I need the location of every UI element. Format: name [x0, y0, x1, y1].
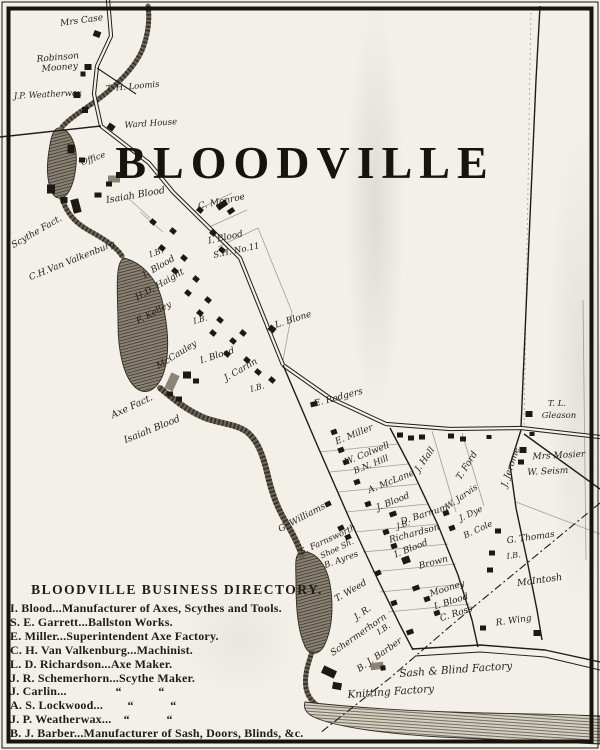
map-label: C.H.Van Valkenburg: [28, 239, 117, 283]
map-label: E. Miller: [333, 423, 375, 448]
building: [419, 435, 425, 440]
directory-entry: C. H. Van Valkenburg...Machinist.: [10, 644, 344, 658]
map-title: BLOODVILLE: [115, 137, 494, 188]
building: [81, 72, 86, 77]
building: [68, 145, 75, 154]
map-label: I.B.: [505, 550, 521, 561]
map-label: Mrs Case: [59, 13, 104, 29]
directory-entry: I. Blood...Manufacturer of Axes, Scythes…: [10, 602, 344, 616]
building: [412, 584, 420, 591]
building: [480, 626, 486, 631]
map-label: Mrs Mosier: [531, 450, 586, 463]
lot-line: [258, 228, 292, 312]
building: [408, 436, 414, 441]
building: [183, 372, 191, 379]
building: [268, 376, 276, 384]
map-label: J.P. Weatherwax: [12, 88, 83, 102]
building: [184, 289, 192, 297]
map-label: L. Blone: [273, 310, 313, 331]
building: [47, 185, 55, 194]
building: [526, 411, 533, 417]
building: [489, 551, 495, 556]
building: [149, 218, 157, 226]
building: [167, 392, 173, 397]
building: [93, 30, 102, 38]
building: [204, 296, 212, 304]
building: [82, 107, 88, 113]
lot-line: [583, 300, 586, 560]
building: [397, 433, 403, 438]
map-label: R. Wing: [494, 614, 532, 629]
directory-entry: S. E. Garrett...Ballston Works.: [10, 616, 344, 630]
building: [164, 372, 179, 391]
building: [364, 501, 371, 508]
building: [423, 596, 430, 603]
directory-entry: J. Carlin... “ “: [10, 685, 344, 699]
map-label: T. Ford: [455, 450, 480, 482]
west-road: [0, 126, 101, 137]
map-label: Mooney: [40, 61, 79, 74]
building: [389, 510, 397, 517]
map-label: W. Seism: [527, 466, 568, 478]
building: [330, 429, 337, 436]
building: [406, 628, 414, 635]
building: [95, 193, 102, 198]
map-label: I. Blood: [198, 346, 236, 367]
building: [390, 600, 397, 607]
building: [61, 197, 68, 203]
directory-entry: E. Miller...Superintendent Axe Factory.: [10, 630, 344, 644]
building: [254, 368, 262, 376]
directory-entry: L. D. Richardson...Axe Maker.: [10, 658, 344, 672]
map-label: B. Cole: [461, 519, 494, 542]
building: [70, 198, 81, 214]
map-label: Gleason: [542, 411, 577, 421]
map-label: McIntosh: [515, 572, 563, 589]
map-label: T. L.: [548, 399, 566, 409]
map-label: Isaiah Blood: [121, 413, 181, 446]
map-label: J. Carlin: [221, 357, 260, 385]
building: [518, 460, 524, 465]
building: [176, 397, 182, 402]
building: [229, 337, 237, 345]
map-label: Scythe Fact.: [10, 214, 64, 251]
building: [106, 182, 112, 187]
building: [337, 447, 344, 454]
directory-entry: J. P. Weatherwax... “ “: [10, 713, 344, 727]
building: [324, 500, 332, 507]
map-label: A. McLane: [366, 468, 416, 496]
map-label: G. Thomas: [506, 530, 556, 547]
map-label: Isaiah Blood: [104, 185, 166, 206]
map-label: Knitting Factory: [346, 683, 435, 701]
building: [85, 64, 92, 70]
map-label: B. J. Barber: [355, 636, 405, 675]
map-label: Ward House: [124, 117, 177, 131]
building: [209, 329, 217, 337]
jerome-road-north: [521, 6, 540, 427]
building: [530, 432, 535, 436]
map-label: J. Hall: [412, 446, 437, 476]
directory-title: BLOODVILLE BUSINESS DIRECTORY.: [10, 582, 344, 598]
map-label: J. Jerome: [499, 446, 522, 490]
map-label: I.B.: [191, 313, 208, 326]
map-label: I.B.: [147, 246, 164, 260]
building: [239, 329, 247, 337]
building: [460, 437, 466, 442]
building: [487, 568, 493, 573]
directory-entry: A. S. Lockwood... “ “: [10, 699, 344, 713]
building: [227, 207, 236, 215]
map-label: J. Blood: [373, 491, 411, 514]
building: [169, 227, 177, 235]
map-page: Mrs CaseRobinsonMooneyT. H. LoomisJ.P. W…: [0, 0, 600, 750]
building: [193, 379, 199, 384]
directory-entry: B. J. Barber...Manufacturer of Sash, Doo…: [10, 727, 344, 741]
lot-line: [516, 502, 600, 534]
map-label: Brown: [417, 554, 450, 572]
building: [534, 630, 541, 636]
map-label: Office: [80, 150, 107, 168]
creek-band: [304, 702, 600, 744]
bottom-road: [412, 645, 600, 662]
building: [495, 529, 501, 534]
map-label: Sash & Blind Factory: [399, 660, 514, 680]
map-label: Axe Fact.: [108, 392, 154, 421]
lot-line: [207, 210, 247, 228]
building: [448, 434, 454, 439]
building: [487, 435, 492, 439]
building: [448, 525, 455, 532]
map-label: I.B.: [248, 381, 265, 394]
building: [216, 316, 224, 324]
business-directory: BLOODVILLE BUSINESS DIRECTORY. I. Blood.…: [10, 582, 344, 741]
directory-entry: J. R. Schemerhorn...Scythe Maker.: [10, 672, 344, 686]
building: [353, 479, 360, 486]
building: [380, 665, 386, 671]
building: [192, 275, 200, 283]
map-label: J. Dye: [456, 504, 485, 524]
building: [180, 254, 188, 262]
